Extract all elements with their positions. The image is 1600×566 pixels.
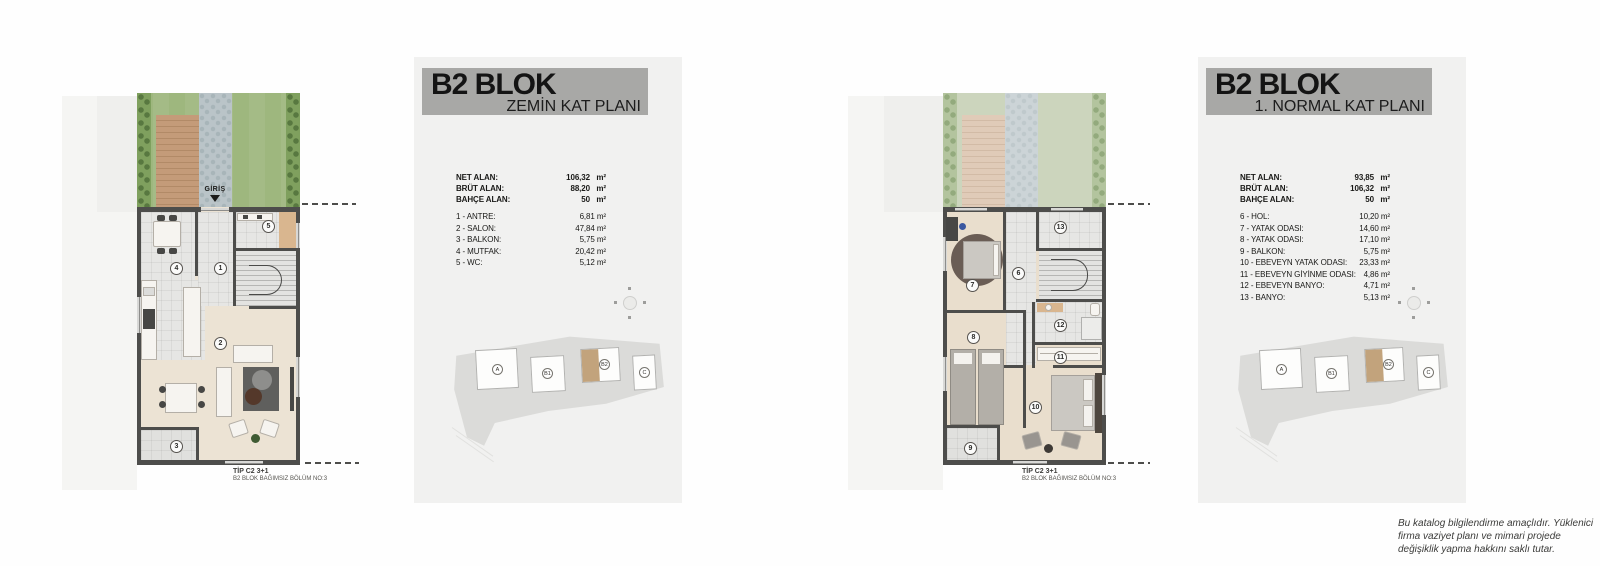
panel-first: B2 BLOK 1. NORMAL KAT PLANI NET ALAN: 93… — [1198, 57, 1466, 503]
b2-highlight — [581, 349, 599, 382]
room-label: 5 - WC: — [456, 257, 560, 269]
pillow — [993, 244, 999, 276]
room-value: 5,75 m² — [1344, 246, 1390, 258]
room-badge-balkon: 9 — [964, 442, 977, 455]
kitchen-island — [183, 287, 201, 357]
site-block-label-b2: B2 — [599, 359, 610, 370]
leader-dash-line — [1108, 203, 1150, 205]
siteplan-first: A B1 B2 C — [1236, 327, 1450, 447]
disclaimer-text: Bu katalog bilgilendirme amaçlıdır. Yükl… — [1398, 517, 1596, 557]
room-label: 4 - MUTFAK: — [456, 246, 560, 258]
wall — [233, 248, 300, 251]
room-badge-ebeveyn-banyo: 12 — [1054, 319, 1067, 332]
summary-value: 106,32 — [1344, 183, 1374, 194]
bushes-right — [1092, 93, 1106, 207]
chair — [157, 215, 165, 221]
wood-deck — [156, 115, 199, 207]
stair-rail — [1051, 259, 1088, 291]
room-value: 5,75 m² — [560, 234, 606, 246]
summary-row: BAHÇE ALAN: 50 m² — [1240, 194, 1390, 205]
summary-value: 50 — [560, 194, 590, 205]
staircase — [1039, 251, 1102, 299]
room-badge-yatak8: 8 — [967, 331, 980, 344]
floor-balcony — [141, 430, 196, 460]
pillow — [1083, 405, 1093, 427]
room-row: 12 - EBEVEYN BANYO: 4,71 m² — [1240, 280, 1390, 292]
panel-title: B2 BLOK — [431, 70, 641, 99]
room-row: 11 - EBEVEYN GİYİNME ODASI: 4,86 m² — [1240, 269, 1390, 281]
floorplan-ground: GİRİŞ — [137, 93, 300, 465]
room-value: 14,60 m² — [1344, 223, 1390, 235]
unit-label: B2 BLOK BAĞIMSIZ BÖLÜM NO:3 — [233, 476, 327, 482]
wall — [229, 207, 300, 212]
room-badge-salon: 2 — [214, 337, 227, 350]
room-label: 13 - BANYO: — [1240, 292, 1344, 304]
room-label: 2 - SALON: — [456, 223, 560, 235]
room-label: 10 - EBEVEYN YATAK ODASI: — [1240, 257, 1344, 269]
room-label: 11 - EBEVEYN GİYİNME ODASI: — [1240, 269, 1344, 281]
site-block-label-b1: B1 — [542, 368, 553, 379]
armchair — [1021, 431, 1042, 450]
room-badge-ebeveyn-yatak: 10 — [1029, 401, 1042, 414]
summary-label: BRÜT ALAN: — [1240, 183, 1344, 194]
armchair — [1060, 431, 1081, 450]
pillow — [1083, 379, 1093, 401]
bushes-left — [137, 93, 151, 207]
entrance-label: GİRİŞ — [189, 186, 241, 193]
room-badge-giyinme: 11 — [1054, 351, 1067, 364]
panel-subtitle: 1. NORMAL KAT PLANI — [1215, 99, 1425, 114]
compass-dot — [1398, 301, 1401, 304]
compass-circle — [623, 296, 637, 310]
wall — [137, 460, 300, 465]
room-row: 7 - YATAK ODASI: 14,60 m² — [1240, 223, 1390, 235]
kitchen-sink — [143, 287, 155, 296]
compass-dot — [1427, 301, 1430, 304]
panel-header-first: B2 BLOK 1. NORMAL KAT PLANI — [1206, 68, 1432, 115]
house-first: 6 7 8 9 10 11 12 13 — [943, 207, 1106, 465]
room-value: 17,10 m² — [1344, 234, 1390, 246]
room-row: 6 - HOL: 10,20 m² — [1240, 211, 1390, 223]
sofa — [216, 367, 232, 417]
compass-dot — [643, 301, 646, 304]
summary-row: BRÜT ALAN: 88,20 m² — [456, 183, 606, 194]
summary-value: 106,32 — [560, 172, 590, 183]
compass-dot — [1412, 287, 1415, 290]
room-label: 6 - HOL: — [1240, 211, 1344, 223]
room-value: 20,42 m² — [560, 246, 606, 258]
summary-label: NET ALAN: — [456, 172, 560, 183]
entrance-door-opening — [201, 208, 229, 211]
room-list-first: 6 - HOL: 10,20 m² 7 - YATAK ODASI: 14,60… — [1240, 211, 1390, 303]
wardrobe-rail — [1040, 353, 1098, 354]
area-table-first: NET ALAN: 93,85 m² BRÜT ALAN: 106,32 m² … — [1240, 172, 1390, 303]
summary-row: NET ALAN: 93,85 m² — [1240, 172, 1390, 183]
wall — [196, 430, 199, 465]
wall — [137, 207, 201, 212]
room-value: 6,81 m² — [560, 211, 606, 223]
wall — [1036, 212, 1039, 248]
room-row: 8 - YATAK ODASI: 17,10 m² — [1240, 234, 1390, 246]
summary-unit: m² — [1374, 183, 1390, 194]
chair — [198, 386, 205, 393]
summary-label: BRÜT ALAN: — [456, 183, 560, 194]
wall — [1003, 212, 1006, 310]
desk — [946, 217, 958, 241]
window — [943, 237, 947, 271]
summary-row: NET ALAN: 106,32 m² — [456, 172, 606, 183]
side-table — [1044, 444, 1053, 453]
plant — [251, 434, 260, 443]
garden-first — [943, 93, 1106, 207]
desk-chair — [959, 223, 966, 230]
panel-subtitle: ZEMİN KAT PLANI — [431, 99, 641, 114]
panel-title: B2 BLOK — [1215, 70, 1425, 99]
unit-label: B2 BLOK BAĞIMSIZ BÖLÜM NO:3 — [1022, 476, 1116, 482]
room-row: 4 - MUTFAK: 20,42 m² — [456, 246, 606, 258]
house-ground: 1 2 3 4 5 — [137, 207, 300, 465]
stove — [143, 309, 155, 329]
room-label: 3 - BALKON: — [456, 234, 560, 246]
wardrobe — [1037, 347, 1101, 361]
wall — [1032, 302, 1035, 368]
wc-sink — [243, 215, 248, 219]
type-label: TİP C2 3+1 — [233, 468, 327, 475]
floor-bath13 — [1039, 212, 1102, 248]
wall — [997, 428, 1000, 465]
room-badge-yatak7: 7 — [966, 279, 979, 292]
compass-dot — [628, 287, 631, 290]
dining-table — [165, 383, 197, 413]
chair — [157, 248, 165, 254]
window — [1102, 375, 1106, 415]
summary-label: NET ALAN: — [1240, 172, 1344, 183]
wall — [947, 310, 1026, 313]
sink — [1045, 304, 1052, 311]
dining-table-small — [153, 221, 181, 247]
room-label: 9 - BALKON: — [1240, 246, 1344, 258]
headboard — [1095, 373, 1102, 433]
wc-sink — [257, 215, 262, 219]
plan-caption-first: TİP C2 3+1 B2 BLOK BAĞIMSIZ BÖLÜM NO:3 — [1022, 468, 1116, 482]
panel-header-ground: B2 BLOK ZEMİN KAT PLANI — [422, 68, 648, 115]
summary-unit: m² — [1374, 172, 1390, 183]
room-value: 4,71 m² — [1344, 280, 1390, 292]
wall — [195, 212, 198, 276]
type-label: TİP C2 3+1 — [1022, 468, 1116, 475]
window — [1051, 208, 1083, 211]
chair — [159, 386, 166, 393]
room-label: 8 - YATAK ODASI: — [1240, 234, 1344, 246]
stone-path — [1005, 93, 1038, 207]
catalog-page: GİRİŞ — [0, 0, 1600, 566]
wall — [249, 306, 300, 309]
summary-value: 93,85 — [1344, 172, 1374, 183]
window — [296, 357, 300, 397]
leader-dash-line — [1108, 462, 1150, 464]
tv-unit — [290, 367, 294, 411]
toilet — [1090, 303, 1100, 316]
wall — [1003, 365, 1023, 368]
room-row: 1 - ANTRE: 6,81 m² — [456, 211, 606, 223]
leader-dash-line — [305, 462, 359, 464]
b2-highlight — [1365, 349, 1383, 382]
site-block-label-b1: B1 — [1326, 368, 1337, 379]
wall — [1032, 342, 1106, 345]
room-badge-balkon: 3 — [170, 440, 183, 453]
pillow — [982, 353, 1000, 364]
wall — [1023, 313, 1026, 428]
chair — [159, 401, 166, 408]
summary-label: BAHÇE ALAN: — [456, 194, 560, 205]
room-value: 5,13 m² — [1344, 292, 1390, 304]
room-badge-mutfak: 4 — [170, 262, 183, 275]
room-row: 13 - BANYO: 5,13 m² — [1240, 292, 1390, 304]
wall — [141, 427, 199, 430]
summary-unit: m² — [590, 183, 606, 194]
leader-dash-line — [302, 203, 356, 205]
armchair — [228, 419, 249, 439]
chair — [169, 215, 177, 221]
room-row: 10 - EBEVEYN YATAK ODASI: 23,33 m² — [1240, 257, 1390, 269]
room-badge-hol: 6 — [1012, 267, 1025, 280]
summary-unit: m² — [590, 194, 606, 205]
room-value: 23,33 m² — [1344, 257, 1390, 269]
summary-value: 88,20 — [560, 183, 590, 194]
staircase — [236, 251, 296, 306]
room-row: 9 - BALKON: 5,75 m² — [1240, 246, 1390, 258]
backdrop-right-top — [884, 96, 944, 212]
room-label: 12 - EBEVEYN BANYO: — [1240, 280, 1344, 292]
room-label: 1 - ANTRE: — [456, 211, 560, 223]
summary-row: BRÜT ALAN: 106,32 m² — [1240, 183, 1390, 194]
compass-circle — [1407, 296, 1421, 310]
room-badge-wc: 5 — [262, 220, 275, 233]
armchair — [259, 419, 280, 439]
compass-icon — [1396, 285, 1432, 321]
chair — [169, 248, 177, 254]
wall — [1036, 299, 1106, 302]
shower — [1081, 317, 1102, 340]
window — [296, 223, 300, 249]
summary-row: BAHÇE ALAN: 50 m² — [456, 194, 606, 205]
wood-deck — [962, 115, 1005, 207]
floorplan-first: 6 7 8 9 10 11 12 13 — [943, 93, 1106, 465]
sofa — [233, 345, 273, 363]
site-block-label-c: C — [1423, 367, 1434, 378]
chair — [198, 401, 205, 408]
wall — [233, 212, 236, 306]
summary-unit: m² — [1374, 194, 1390, 205]
wall — [1053, 365, 1106, 368]
summary-unit: m² — [590, 172, 606, 183]
room-value: 10,20 m² — [1344, 211, 1390, 223]
stair-rail — [249, 265, 282, 295]
room-row: 3 - BALKON: 5,75 m² — [456, 234, 606, 246]
compass-dot — [614, 301, 617, 304]
pillow — [954, 353, 972, 364]
bushes-left — [943, 93, 957, 207]
window — [943, 357, 947, 391]
wall — [947, 425, 1000, 428]
plan-caption-ground: TİP C2 3+1 B2 BLOK BAĞIMSIZ BÖLÜM NO:3 — [233, 468, 327, 482]
site-block-label-b2: B2 — [1383, 359, 1394, 370]
panel-ground: B2 BLOK ZEMİN KAT PLANI NET ALAN: 106,32… — [414, 57, 682, 503]
window — [955, 208, 987, 211]
room-label: 7 - YATAK ODASI: — [1240, 223, 1344, 235]
wall — [1102, 207, 1106, 465]
room-row: 5 - WC: 5,12 m² — [456, 257, 606, 269]
site-block-label-c: C — [639, 367, 650, 378]
compass-dot — [1412, 316, 1415, 319]
room-list-ground: 1 - ANTRE: 6,81 m² 2 - SALON: 47,84 m² 3… — [456, 211, 606, 269]
room-value: 47,84 m² — [560, 223, 606, 235]
site-block-label-a: A — [1276, 364, 1287, 375]
summary-value: 50 — [1344, 194, 1374, 205]
siteplan-ground: A B1 B2 C — [452, 327, 666, 447]
room-value: 4,86 m² — [1344, 269, 1390, 281]
entrance-arrow-icon — [210, 195, 220, 202]
window — [225, 461, 263, 464]
compass-icon — [612, 285, 648, 321]
room-badge-antre: 1 — [214, 262, 227, 275]
site-block-label-a: A — [492, 364, 503, 375]
wc-cabinet — [280, 213, 294, 246]
bushes-right — [286, 93, 300, 207]
wall — [1036, 248, 1106, 251]
area-table-ground: NET ALAN: 106,32 m² BRÜT ALAN: 88,20 m² … — [456, 172, 606, 269]
room-badge-banyo: 13 — [1054, 221, 1067, 234]
compass-dot — [628, 316, 631, 319]
window — [1013, 461, 1047, 464]
floor-entry — [198, 212, 233, 306]
coffee-table — [245, 388, 262, 405]
room-value: 5,12 m² — [560, 257, 606, 269]
summary-label: BAHÇE ALAN: — [1240, 194, 1344, 205]
room-row: 2 - SALON: 47,84 m² — [456, 223, 606, 235]
ottoman — [252, 370, 272, 390]
